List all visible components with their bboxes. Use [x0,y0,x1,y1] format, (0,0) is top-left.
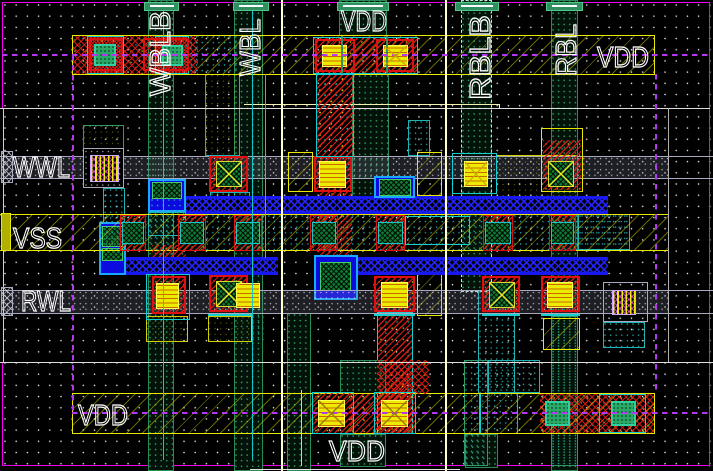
svg-text:WBL: WBL [235,19,267,76]
svg-text:RWL: RWL [21,286,71,318]
svg-text:VDD: VDD [597,42,649,74]
svg-text:RBLB: RBLB [465,15,497,100]
svg-text:RBL: RBL [551,24,583,76]
svg-text:VDD: VDD [329,436,385,468]
svg-text:WWL: WWL [13,152,70,184]
svg-text:VSS: VSS [13,223,62,255]
svg-text:VDD: VDD [78,400,128,432]
svg-text:WBLB: WBLB [145,11,177,96]
svg-text:VDD: VDD [341,6,387,38]
